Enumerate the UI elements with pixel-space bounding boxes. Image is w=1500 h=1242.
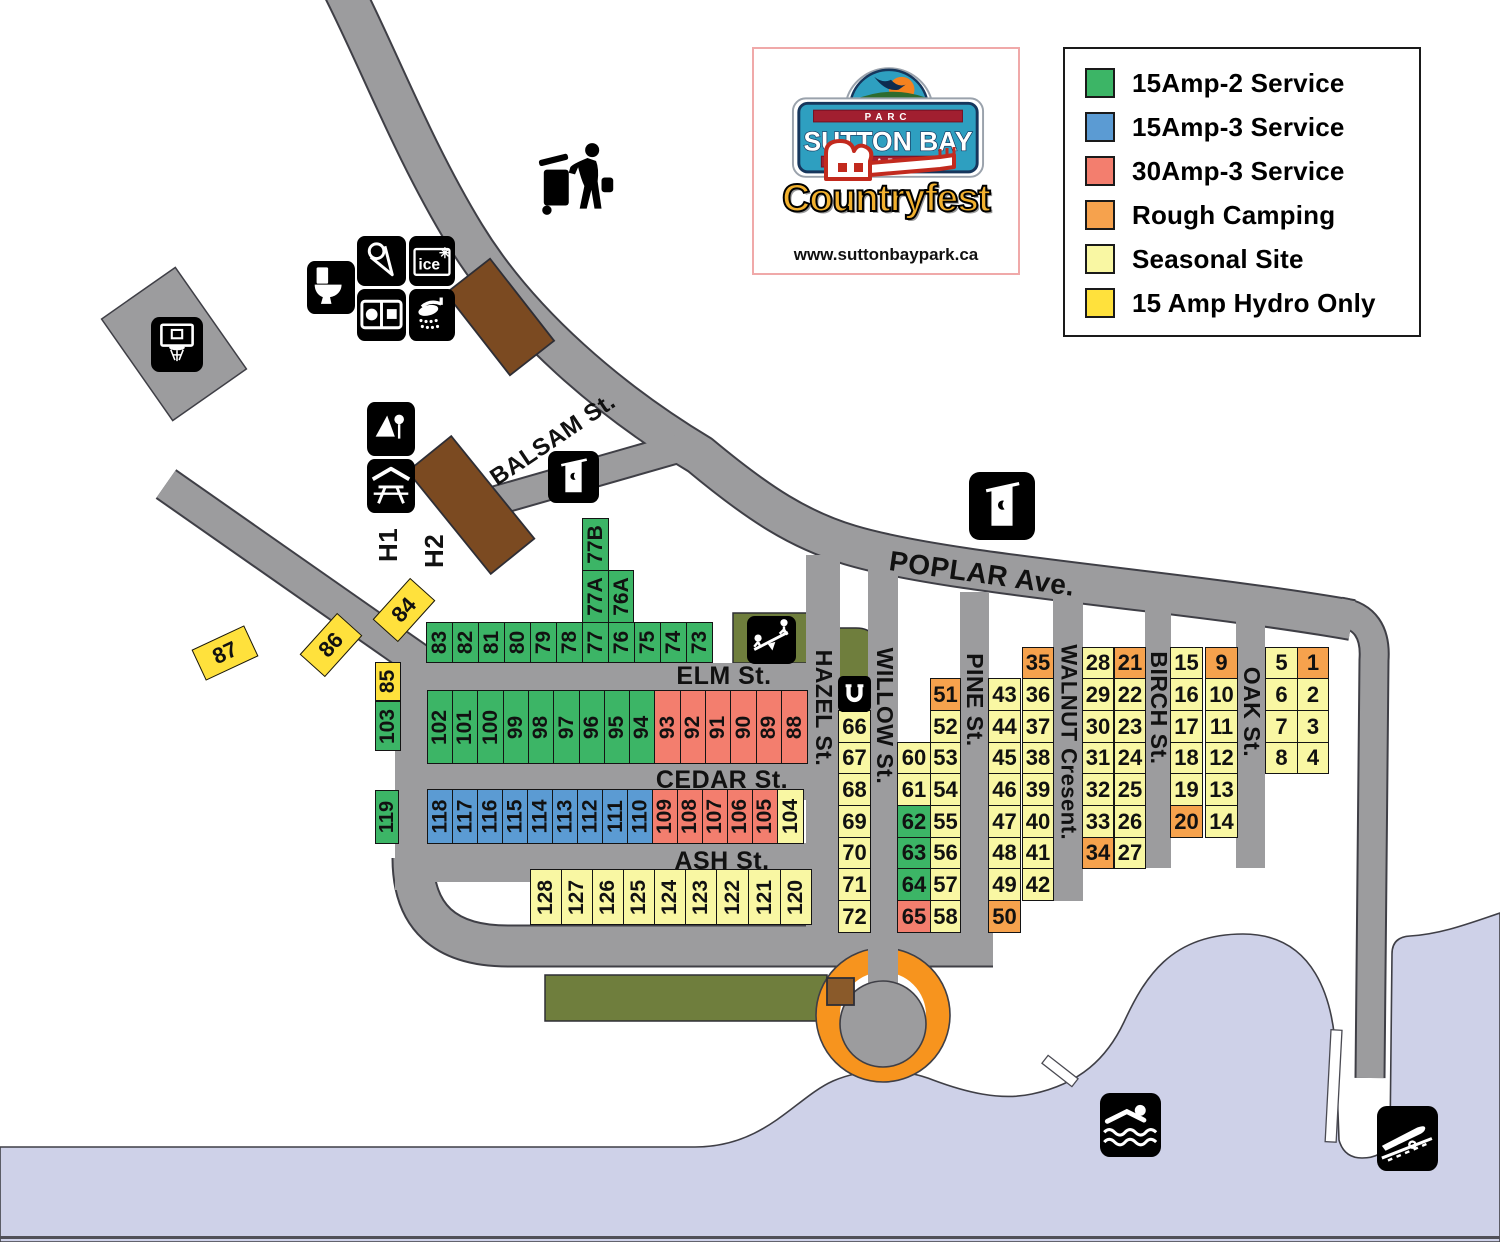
site-95: 95 [604,690,630,764]
legend-item-y: 15 Amp Hydro Only [1085,281,1419,325]
playground-icon [367,402,415,456]
site-66: 66 [838,710,871,743]
site-23: 23 [1114,710,1146,743]
site-119: 119 [375,790,399,844]
basketball-hoop-icon [151,317,203,372]
site-19: 19 [1170,773,1203,806]
ice-cream-icon [357,236,406,286]
legend-swatch-g [1085,68,1115,98]
site-44: 44 [988,710,1021,743]
site-127: 127 [561,869,593,925]
site-77: 77 [582,622,609,663]
site-72: 72 [838,900,871,933]
site-53: 53 [930,742,961,774]
site-54: 54 [930,773,961,806]
site-126: 126 [592,869,624,925]
legend-label: 15Amp-2 Service [1132,68,1345,99]
site-2: 2 [1297,678,1329,711]
site-24: 24 [1114,742,1146,774]
site-30: 30 [1082,710,1114,743]
legend-label: 15Amp-3 Service [1132,112,1345,143]
street-label-hazel-st: HAZEL St. [808,508,838,908]
boat-launch-icon [1377,1106,1438,1171]
site-41: 41 [1022,837,1054,869]
site-49: 49 [988,868,1021,901]
site-92: 92 [680,690,706,764]
site-5: 5 [1265,647,1298,679]
countryfest-title: Countryfest [782,177,990,221]
site-45: 45 [988,742,1021,774]
site-12: 12 [1205,742,1238,774]
legend-label: 30Amp-3 Service [1132,156,1345,187]
site-106: 106 [727,789,753,844]
site-114: 114 [527,789,553,844]
site-18: 18 [1170,742,1203,774]
site-20: 20 [1170,805,1203,838]
site-22: 22 [1114,678,1146,711]
site-29: 29 [1082,678,1114,711]
site-37: 37 [1022,710,1054,743]
site-81: 81 [478,622,505,663]
site-55: 55 [930,805,961,838]
site-34: 34 [1082,837,1114,869]
toilet-icon [307,261,355,314]
site-122: 122 [716,869,749,925]
site-121: 121 [748,869,781,925]
legend-swatch-p [1085,244,1115,274]
legend-item-o: Rough Camping [1085,193,1419,237]
street-label-cedar-st: CEDAR St. [522,764,922,797]
site-8: 8 [1265,742,1298,774]
site-33: 33 [1082,805,1114,838]
legend-label: Seasonal Site [1132,244,1304,275]
site-125: 125 [623,869,655,925]
site-82: 82 [452,622,479,663]
legend-swatch-b [1085,112,1115,142]
campground-map: 838281807978777675747377B77A76A851031021… [0,0,1500,1242]
legend-label: Rough Camping [1132,200,1335,231]
site-107: 107 [702,789,728,844]
site-48: 48 [988,837,1021,869]
trash-disposal-icon [536,140,614,218]
park-logo: PARC SUTTON BAY PARK Countryfest www.sut… [752,47,1020,275]
site-111: 111 [602,789,628,844]
site-96: 96 [579,690,605,764]
site-79: 79 [530,622,557,663]
site-75: 75 [634,622,661,663]
legend-label: 15 Amp Hydro Only [1132,288,1376,319]
street-label-ash-st: ASH St. [522,845,922,878]
site-128: 128 [530,869,562,925]
street-label-oak-st: OAK St. [1236,512,1266,912]
site-76: 76 [608,622,635,663]
legend-item-r: 30Amp-3 Service [1085,149,1419,193]
site-115: 115 [502,789,528,844]
site-36: 36 [1022,678,1054,711]
site-104: 104 [777,789,804,844]
site-73: 73 [686,622,713,663]
site-98: 98 [528,690,554,764]
site-100: 100 [477,690,504,764]
site-94: 94 [629,690,655,764]
legend-item-g: 15Amp-2 Service [1085,61,1419,105]
site-32: 32 [1082,773,1114,806]
seesaw-icon [747,616,796,664]
legend-swatch-r [1085,156,1115,186]
site-11: 11 [1205,710,1238,743]
legend-item-b: 15Amp-3 Service [1085,105,1419,149]
site-78: 78 [556,622,583,663]
street-label-pine-st: PINE St. [959,500,989,900]
site-31: 31 [1082,742,1114,774]
site-52: 52 [930,710,961,743]
site-93: 93 [654,690,681,764]
site-116: 116 [477,789,503,844]
street-label-h2: H2 [418,351,452,751]
street-label-willow-st: WILLOW St. [869,516,899,916]
site-40: 40 [1022,805,1054,838]
site-65: 65 [897,900,931,933]
site-21: 21 [1114,647,1146,679]
site-108: 108 [677,789,703,844]
street-label-birch-st: BIRCH St. [1143,508,1173,908]
site-97: 97 [553,690,580,764]
site-118: 118 [427,789,453,844]
site-74: 74 [660,622,687,663]
site-4: 4 [1297,742,1329,774]
site-35: 35 [1022,647,1054,679]
site-17: 17 [1170,710,1203,743]
site-77A: 77A [582,570,609,623]
site-112: 112 [577,789,603,844]
site-124: 124 [654,869,686,925]
site-51: 51 [930,678,961,711]
svg-text:ice: ice [418,257,440,274]
site-6: 6 [1265,678,1298,711]
site-46: 46 [988,773,1021,806]
site-101: 101 [452,690,478,764]
shower-icon [409,289,455,341]
site-58: 58 [930,900,961,933]
swimming-icon [1100,1093,1161,1157]
site-90: 90 [730,690,757,764]
horseshoe-icon [838,676,871,712]
site-99: 99 [503,690,529,764]
site-3: 3 [1297,710,1329,743]
site-7: 7 [1265,710,1298,743]
site-10: 10 [1205,678,1238,711]
site-39: 39 [1022,773,1054,806]
site-91: 91 [705,690,731,764]
picnic-shelter-icon [367,459,415,513]
legend-item-p: Seasonal Site [1085,237,1419,281]
site-57: 57 [930,868,961,901]
site-56: 56 [930,837,961,869]
site-27: 27 [1114,837,1146,869]
legend-swatch-y [1085,288,1115,318]
site-47: 47 [988,805,1021,838]
dock-pier-small [1042,1055,1078,1086]
site-123: 123 [685,869,717,925]
site-38: 38 [1022,742,1054,774]
site-1: 1 [1297,647,1329,679]
site-69: 69 [838,805,871,838]
legend: 15Amp-2 Service15Amp-3 Service30Amp-3 Se… [1063,47,1421,337]
site-9: 9 [1205,647,1238,679]
outhouse-icon-large [969,472,1035,540]
site-42: 42 [1022,868,1054,901]
site-80: 80 [504,622,531,663]
grass-strip [545,975,827,1021]
site-14: 14 [1205,805,1238,838]
site-50: 50 [988,900,1021,933]
laundry-icon [357,289,406,341]
site-13: 13 [1205,773,1238,806]
site-105: 105 [752,789,778,844]
site-77B: 77B [582,518,609,571]
building-small [827,978,854,1005]
site-62: 62 [897,805,931,838]
site-26: 26 [1114,805,1146,838]
site-89: 89 [756,690,782,764]
site-117: 117 [452,789,478,844]
svg-text:PARC: PARC [865,112,912,123]
street-label-walnut-cresent: WALNUT Cresent. [1054,542,1083,942]
site-43: 43 [988,678,1021,711]
site-28: 28 [1082,647,1114,679]
site-76A: 76A [608,570,634,623]
site-25: 25 [1114,773,1146,806]
site-16: 16 [1170,678,1203,711]
site-109: 109 [652,789,678,844]
site-15: 15 [1170,647,1203,679]
site-88: 88 [781,690,808,764]
park-website: www.suttonbaypark.ca [754,245,1018,265]
site-113: 113 [552,789,578,844]
site-110: 110 [627,789,653,844]
outhouse-icon-small [548,451,599,503]
ice-icon: ice [409,236,455,286]
legend-swatch-o [1085,200,1115,230]
